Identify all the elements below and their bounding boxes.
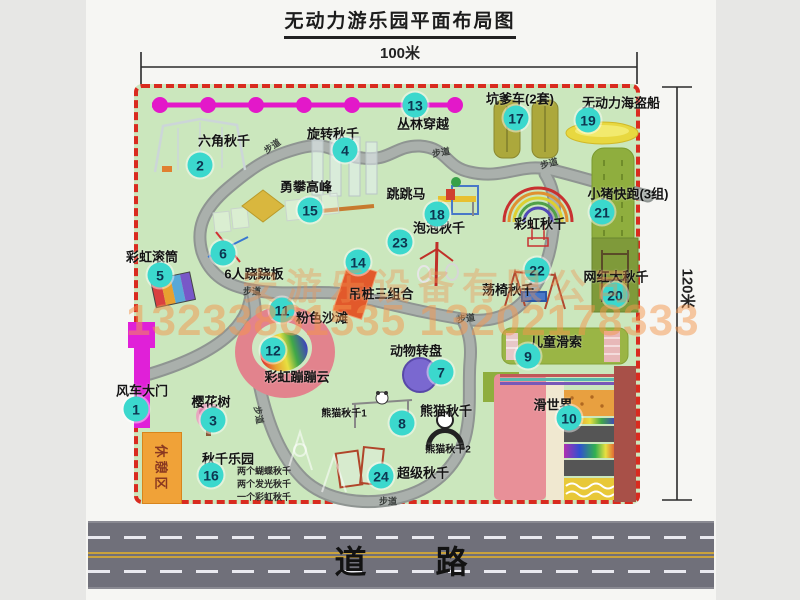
- item-badge-3: 3: [201, 408, 226, 433]
- item-badge-19: 19: [576, 108, 601, 133]
- item-badge-13: 13: [403, 93, 428, 118]
- item-label-15: 勇攀高峰: [280, 177, 332, 196]
- item-label-12: 彩虹蹦蹦云: [264, 367, 329, 386]
- item-badge-5: 5: [148, 263, 173, 288]
- height-dimension-label: 120米: [678, 249, 699, 329]
- item-badge-14: 14: [346, 250, 371, 275]
- walkway-label-0: 步道: [261, 136, 283, 157]
- item-label-24: 超级秋千: [397, 463, 449, 482]
- item-badge-8: 8: [390, 411, 415, 436]
- item-label-18: 跳跳马: [386, 184, 425, 203]
- swing-note-0: 两个蝴蝶秋千: [237, 464, 291, 477]
- walkway-label-4: 步道: [251, 405, 267, 425]
- item-badge-10: 10: [557, 406, 582, 431]
- swing-note-1: 两个发光秋千: [237, 477, 291, 490]
- item-badge-21: 21: [590, 200, 615, 225]
- item-badge-9: 9: [516, 344, 541, 369]
- item-badge-7: 7: [429, 360, 454, 385]
- item-label-1: 风车大门: [116, 381, 168, 400]
- extra-label-1: 熊猫秋千1: [321, 405, 367, 420]
- item-label-14: 吊桩三组合: [348, 284, 413, 303]
- item-badge-1: 1: [124, 397, 149, 422]
- walkway-label-1: 步道: [431, 144, 451, 160]
- item-badge-12: 12: [261, 338, 286, 363]
- item-badge-24: 24: [369, 464, 394, 489]
- walkway-label-2: 步道: [539, 154, 560, 171]
- item-badge-23: 23: [388, 230, 413, 255]
- item-label-2: 六角秋千: [198, 131, 250, 150]
- extra-label-0: 彩虹秋千: [514, 214, 566, 233]
- item-label-13: 丛林穿越: [397, 114, 449, 133]
- walkway-label-3: 步道: [243, 285, 261, 298]
- item-badge-15: 15: [298, 198, 323, 223]
- item-label-7: 动物转盘: [390, 341, 442, 360]
- page-title: 无动力游乐园平面布局图: [0, 6, 800, 39]
- walkway-label-6: 步道: [379, 495, 397, 508]
- item-label-11: 粉色沙滩: [296, 308, 348, 327]
- extra-label-2: 熊猫秋千2: [425, 441, 471, 456]
- swing-note-2: 一个彩虹秋千: [237, 490, 291, 503]
- item-label-5: 彩虹滚筒: [126, 247, 178, 266]
- item-badge-20: 20: [603, 283, 628, 308]
- item-badge-17: 17: [504, 106, 529, 131]
- item-badge-22: 22: [525, 258, 550, 283]
- item-badge-6: 6: [211, 241, 236, 266]
- walkway-label-5: 步道: [456, 310, 476, 325]
- item-badge-4: 4: [333, 138, 358, 163]
- item-label-17: 坑爹车(2套): [486, 89, 554, 108]
- item-label-22: 荡椅秋千: [482, 280, 534, 299]
- item-badge-16: 16: [199, 463, 224, 488]
- page-title-text: 无动力游乐园平面布局图: [284, 6, 515, 39]
- item-badge-11: 11: [270, 298, 295, 323]
- item-label-8: 熊猫秋千: [420, 401, 472, 420]
- item-badge-18: 18: [425, 202, 450, 227]
- width-dimension-label: 100米: [360, 42, 440, 63]
- item-badge-2: 2: [188, 153, 213, 178]
- item-label-6: 6人跷跷板: [224, 264, 283, 283]
- playground-layout-map: 无动力游乐园平面布局图: [0, 0, 800, 600]
